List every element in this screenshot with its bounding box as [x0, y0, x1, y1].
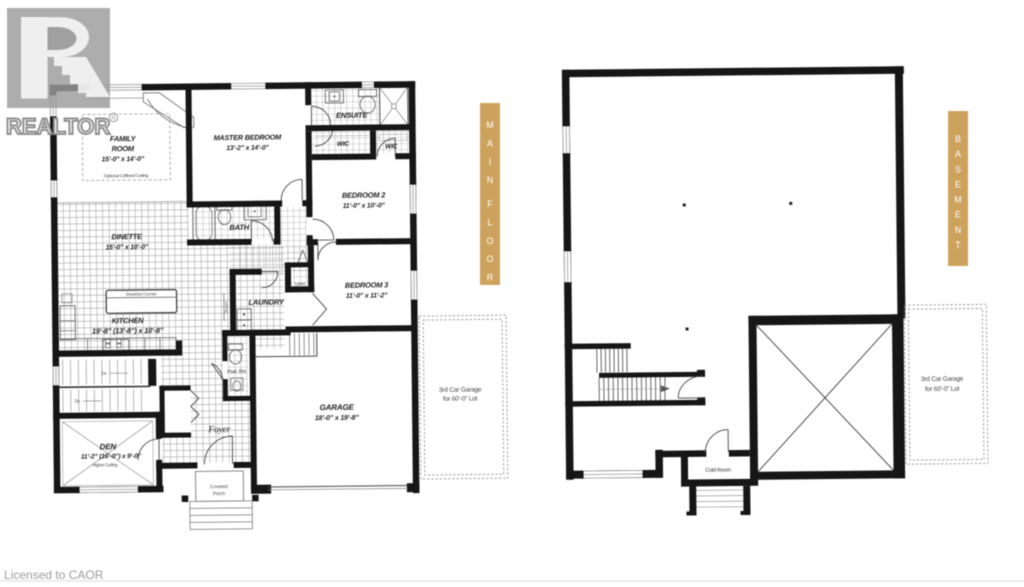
svg-text:E: E — [955, 179, 961, 189]
svg-text:R: R — [487, 273, 494, 283]
svg-text:Linen: Linen — [295, 281, 306, 286]
svg-text:S: S — [955, 164, 961, 174]
svg-text:F: F — [487, 199, 493, 209]
svg-text:FAMILY: FAMILY — [110, 134, 137, 143]
svg-text:DEN: DEN — [100, 442, 117, 451]
svg-text:L: L — [487, 217, 492, 227]
svg-text:3rd Car Garage: 3rd Car Garage — [439, 386, 482, 393]
svg-text:Cold Room: Cold Room — [705, 468, 731, 474]
svg-text:N: N — [487, 175, 494, 185]
svg-text:15’-0” x 10’-0”: 15’-0” x 10’-0” — [106, 244, 149, 251]
svg-text:19’-8” (13’-8”) x 10’-8”: 19’-8” (13’-8”) x 10’-8” — [92, 326, 164, 336]
svg-text:WIC: WIC — [385, 143, 398, 150]
svg-text:Dn: Dn — [74, 399, 80, 404]
svg-text:A: A — [955, 149, 961, 159]
svg-text:Higher Ceiling: Higher Ceiling — [92, 462, 118, 467]
svg-text:MASTER BEDROOM: MASTER BEDROOM — [214, 133, 283, 143]
svg-text:Dn: Dn — [101, 371, 107, 376]
svg-text:T: T — [955, 240, 961, 250]
svg-text:11’-0” x 11’-2”: 11’-0” x 11’-2” — [346, 292, 388, 299]
svg-text:Foyer: Foyer — [207, 425, 230, 435]
svg-text:GARAGE: GARAGE — [320, 403, 355, 412]
svg-text:Broom: Broom — [224, 301, 228, 312]
svg-text:Pwd. Rm: Pwd. Rm — [227, 369, 246, 375]
svg-text:REALTOR: REALTOR — [6, 114, 110, 139]
svg-text:KITCHEN: KITCHEN — [112, 316, 145, 325]
svg-text:LAUNDRY: LAUNDRY — [248, 297, 285, 306]
svg-text:3rd Car Garage: 3rd Car Garage — [921, 376, 964, 383]
svg-text:BEDROOM 3: BEDROOM 3 — [345, 280, 389, 289]
svg-text:11’-0” x 10’-0”: 11’-0” x 10’-0” — [343, 202, 386, 209]
svg-text:I: I — [489, 157, 492, 167]
svg-text:Licensed to CAOR: Licensed to CAOR — [4, 568, 104, 582]
svg-text:BEDROOM 2: BEDROOM 2 — [342, 190, 386, 199]
svg-text:A: A — [487, 138, 493, 148]
svg-text:13’-2” x 14’-0”: 13’-2” x 14’-0” — [226, 145, 269, 152]
svg-text:Breakfast Counter: Breakfast Counter — [126, 291, 157, 296]
svg-text:18’-0” x 19’-8”: 18’-0” x 19’-8” — [315, 415, 360, 422]
svg-text:for 60’-0” Lot: for 60’-0” Lot — [443, 395, 478, 402]
svg-text:15’-0” x 14’-0”: 15’-0” x 14’-0” — [102, 156, 145, 163]
svg-text:O: O — [486, 236, 493, 246]
svg-text:M: M — [486, 120, 494, 130]
svg-text:Porch: Porch — [213, 491, 226, 497]
svg-text:ENSUITE: ENSUITE — [336, 111, 369, 120]
svg-text:N: N — [955, 225, 962, 235]
svg-text:11’-2” (16’-0”) x 9’-0”: 11’-2” (16’-0”) x 9’-0” — [81, 453, 142, 461]
svg-text:Optional Coffered Ceiling: Optional Coffered Ceiling — [104, 173, 149, 178]
svg-text:BATH: BATH — [229, 223, 249, 232]
svg-text:M: M — [954, 195, 962, 205]
svg-text:DINETTE: DINETTE — [111, 232, 143, 241]
svg-text:ROOM: ROOM — [112, 144, 135, 153]
svg-text:R: R — [111, 116, 116, 122]
svg-text:WIC: WIC — [337, 141, 350, 148]
svg-text:O: O — [486, 254, 493, 264]
svg-text:Covered: Covered — [210, 484, 228, 490]
svg-text:E: E — [955, 210, 961, 220]
svg-text:B: B — [955, 134, 961, 144]
svg-text:for 60’-0” Lot: for 60’-0” Lot — [925, 386, 960, 393]
